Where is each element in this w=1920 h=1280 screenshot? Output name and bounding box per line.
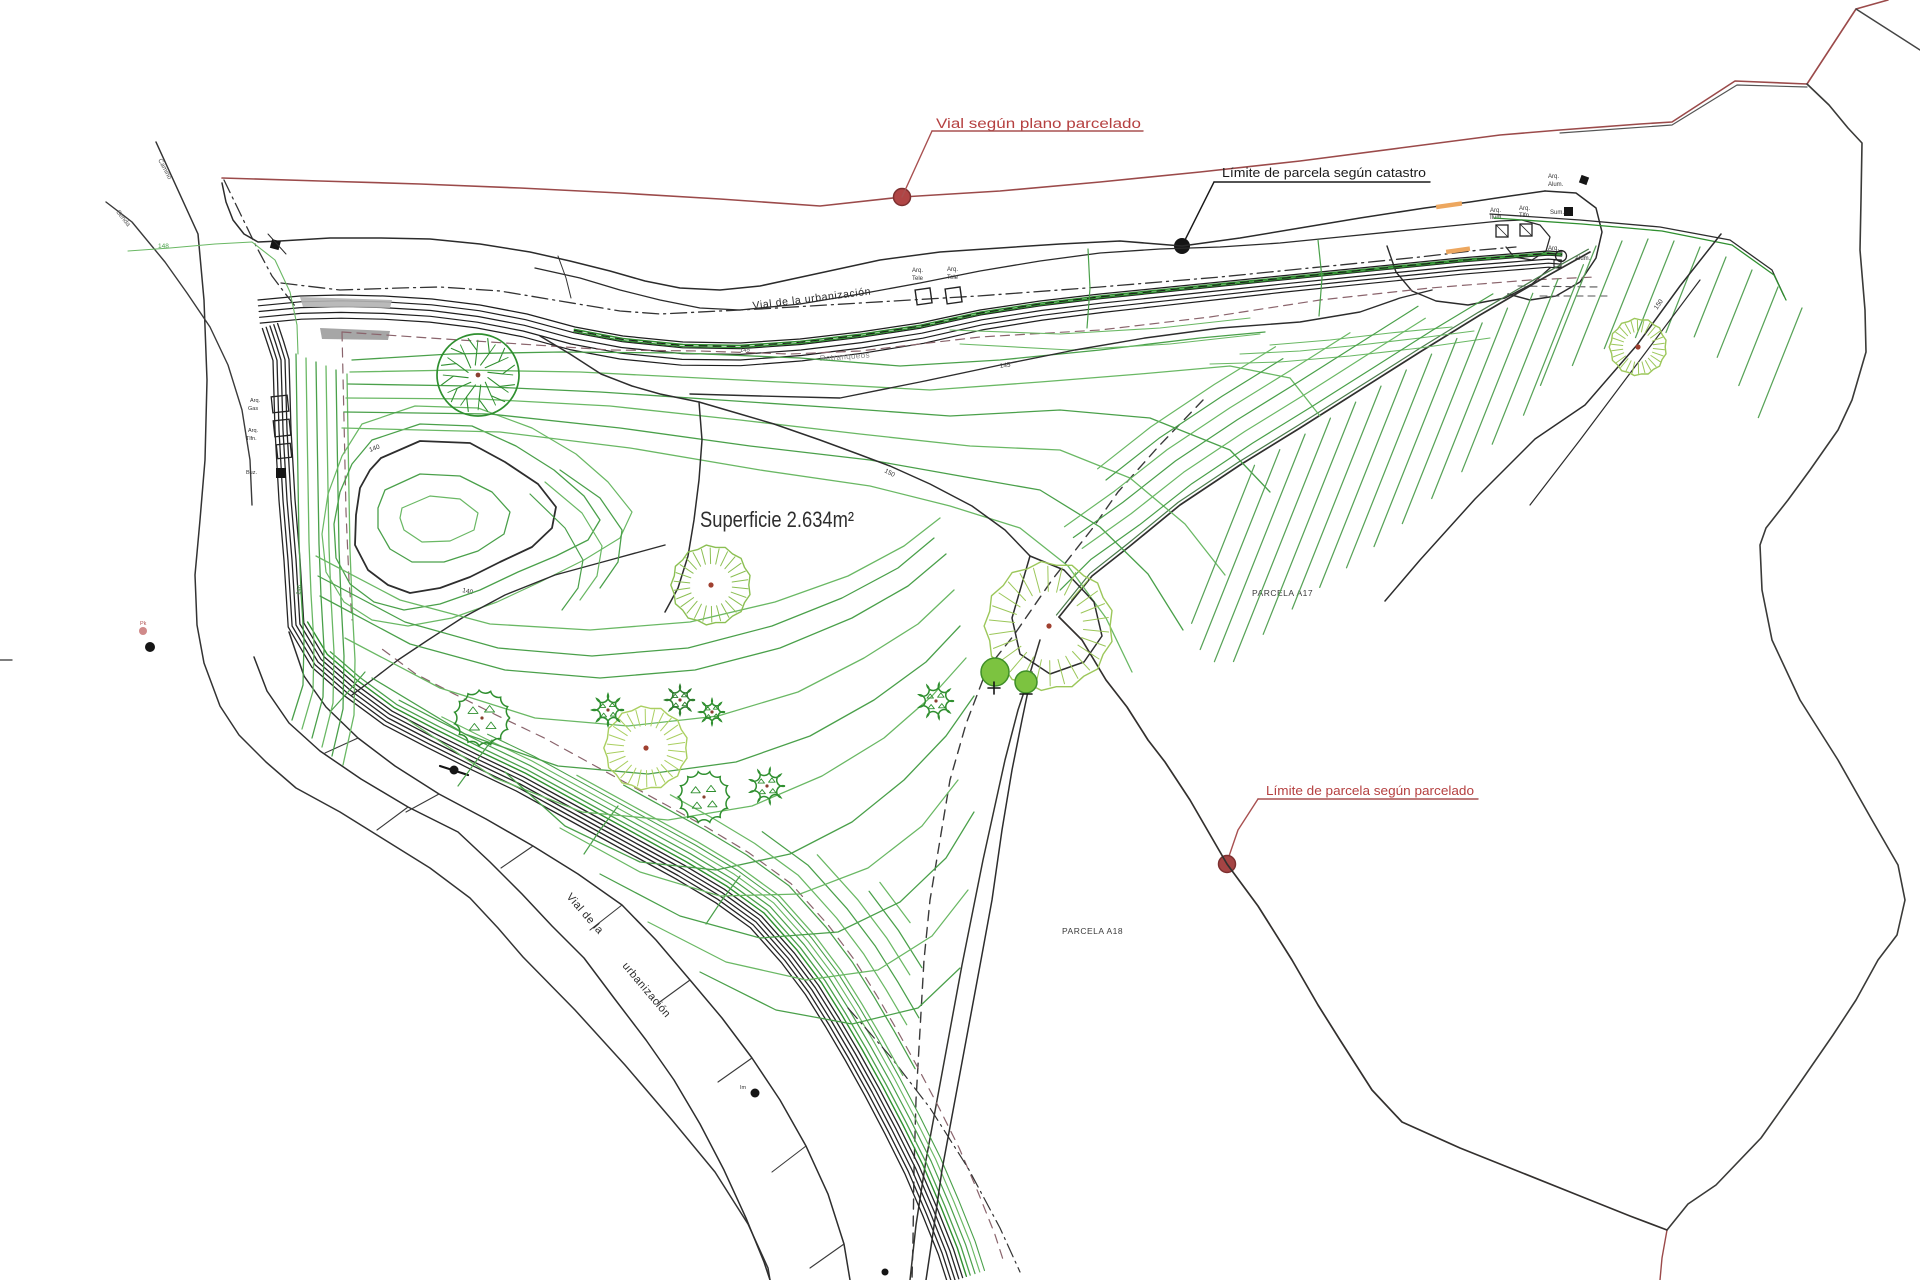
svg-text:Arq.: Arq.: [250, 398, 261, 404]
svg-text:Arq.: Arq.: [1548, 174, 1559, 180]
svg-text:Arq.: Arq.: [1548, 246, 1559, 252]
svg-text:Límite de parcela según catast: Límite de parcela según catastro: [1222, 165, 1426, 180]
svg-text:Vial según plano parcelado: Vial según plano parcelado: [936, 116, 1141, 131]
svg-text:Im: Im: [740, 1085, 747, 1091]
svg-text:Buz.: Buz.: [246, 470, 257, 476]
svg-text:Tlfn.: Tlfn.: [246, 436, 257, 442]
svg-text:Gas: Gas: [248, 406, 258, 412]
svg-text:Arq.: Arq.: [1519, 206, 1530, 212]
svg-text:Arq.: Arq.: [947, 267, 958, 273]
svg-text:Arq.: Arq.: [1490, 208, 1501, 214]
svg-text:Arq.: Arq.: [248, 428, 259, 434]
svg-text:Tele: Tele: [947, 275, 959, 281]
svg-text:Sum.: Sum.: [1550, 210, 1564, 216]
svg-text:Pk: Pk: [140, 621, 147, 627]
svg-text:Superficie 2.634m²: Superficie 2.634m²: [700, 507, 854, 532]
svg-text:PARCELA A18: PARCELA A18: [1062, 926, 1123, 936]
svg-text:Arq.: Arq.: [912, 268, 923, 274]
svg-text:Límite de parcela según parcel: Límite de parcela según parcelado: [1266, 783, 1474, 798]
svg-text:Alum.: Alum.: [1548, 182, 1564, 188]
svg-text:Tele: Tele: [912, 276, 924, 282]
svg-text:148: 148: [158, 243, 169, 250]
svg-text:145: 145: [740, 347, 751, 354]
